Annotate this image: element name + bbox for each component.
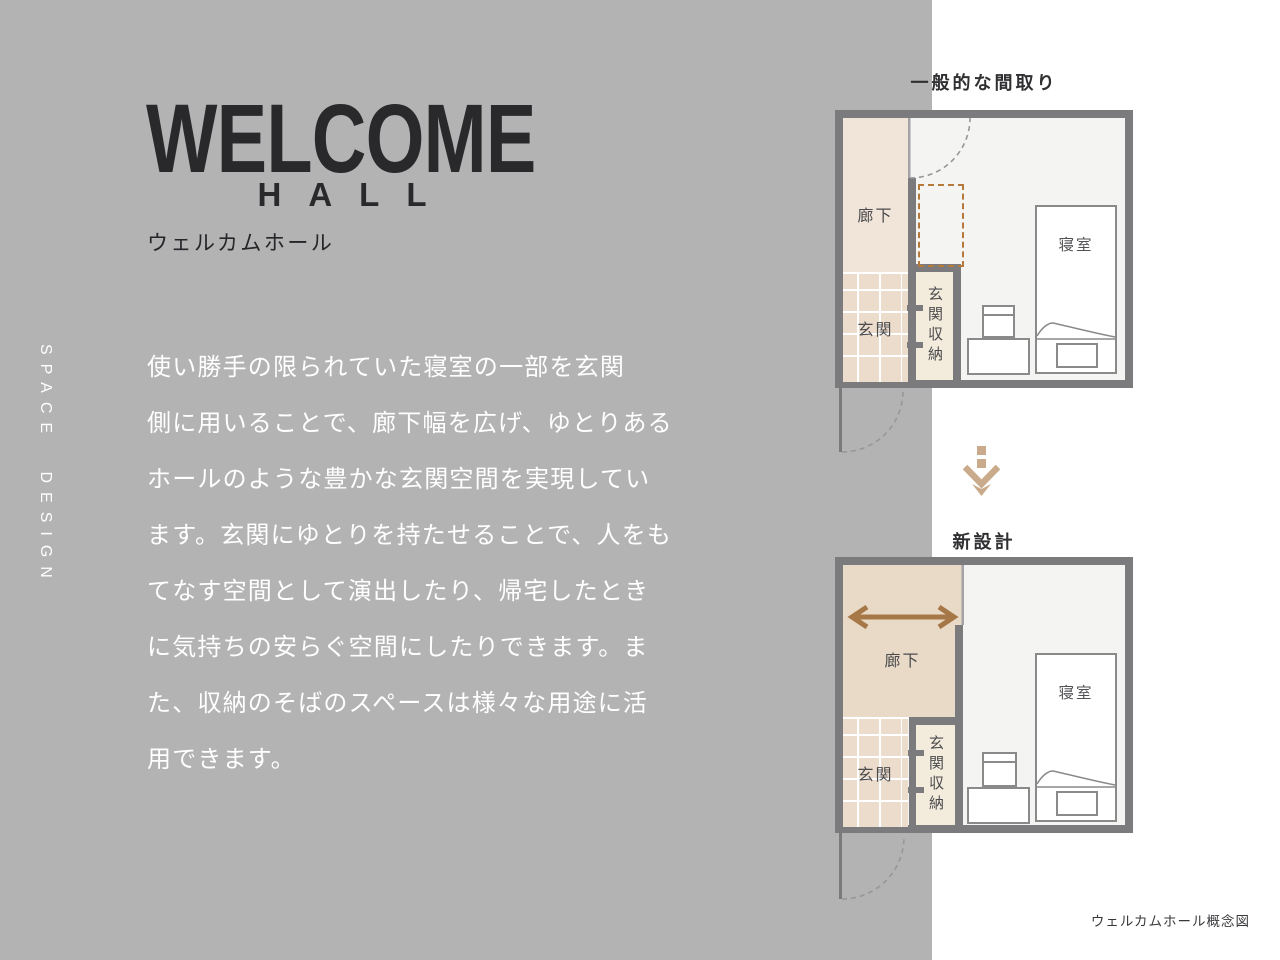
cabinet-wide xyxy=(967,338,1030,375)
entrance-label: 玄関 xyxy=(849,761,902,785)
bedroom-label: 寝室 xyxy=(1037,681,1115,703)
cabinet-wide xyxy=(967,787,1030,824)
dresser-divider xyxy=(984,761,1015,763)
hallway-label: 廊下 xyxy=(843,202,908,226)
new-floor-plan: 玄関収納 廊下 玄関 寝室 xyxy=(835,557,1133,833)
entrance-storage-label: 玄関収納 xyxy=(924,286,945,366)
entrance-door-swing-arc xyxy=(831,831,923,907)
wall xyxy=(909,717,916,825)
entrance-storage-label: 玄関収納 xyxy=(925,735,946,815)
shelf-mark xyxy=(907,305,923,311)
typical-hallway-area xyxy=(843,118,908,272)
wall xyxy=(953,264,961,380)
typical-entrance-storage-area: 玄関収納 xyxy=(916,272,953,380)
wall xyxy=(908,178,916,380)
page-subtitle: HALL xyxy=(146,176,538,214)
vertical-brand-label: SPACE DESIGN xyxy=(36,344,54,587)
typical-plan-heading: 一般的な間取り xyxy=(835,69,1133,95)
hallway-label: 廊下 xyxy=(843,647,962,671)
dresser-small xyxy=(982,305,1015,338)
new-plan-heading: 新設計 xyxy=(835,528,1133,554)
dresser-divider xyxy=(984,314,1013,316)
paragraph-line: に気持ちの安らぐ空間にしたりできます。ま xyxy=(147,620,727,676)
new-entrance-storage-area: 玄関収納 xyxy=(916,725,955,825)
width-arrow-icon xyxy=(847,605,959,629)
paragraph-line: た、収納のそばのスペースは様々な用途に活 xyxy=(147,676,727,732)
entrance-door-swing-arc xyxy=(831,386,923,460)
down-arrow-icon xyxy=(962,446,1000,496)
shelf-mark xyxy=(907,342,923,348)
page-title: WELCOME xyxy=(146,90,536,187)
proposed-area-dashed-rect xyxy=(918,184,964,267)
new-hallway-area xyxy=(843,565,962,717)
bed-pillow xyxy=(1056,791,1098,816)
paragraph-line: 側に用いることで、廊下幅を広げ、ゆとりある xyxy=(147,396,727,452)
page-title-japanese: ウェルカムホール xyxy=(147,227,334,257)
shelf-mark xyxy=(908,787,924,793)
bedroom-label: 寝室 xyxy=(1037,233,1115,255)
entrance-label: 玄関 xyxy=(849,316,902,340)
bed: 寝室 xyxy=(1035,205,1117,374)
paragraph-line: ホールのような豊かな玄関空間を実現してい xyxy=(147,452,727,508)
dresser-small xyxy=(982,752,1017,787)
paragraph-line: 使い勝手の限られていた寝室の一部を玄関 xyxy=(147,340,727,396)
bed-pillow xyxy=(1056,343,1098,368)
description-paragraph: 使い勝手の限られていた寝室の一部を玄関 側に用いることで、廊下幅を広げ、ゆとりあ… xyxy=(147,340,727,788)
paragraph-line: 用できます。 xyxy=(147,732,727,788)
page: SPACE DESIGN WELCOME HALL ウェルカムホール 使い勝手の… xyxy=(0,0,1280,960)
diagram-caption: ウェルカムホール概念図 xyxy=(1000,910,1250,930)
paragraph-line: ます。玄関にゆとりを持たせることで、人をも xyxy=(147,508,727,564)
typical-floor-plan: 玄関収納 廊下 玄関 寝室 xyxy=(835,110,1133,388)
shelf-mark xyxy=(908,750,924,756)
bed: 寝室 xyxy=(1035,653,1117,822)
paragraph-line: てなす空間として演出したり、帰宅したとき xyxy=(147,564,727,620)
